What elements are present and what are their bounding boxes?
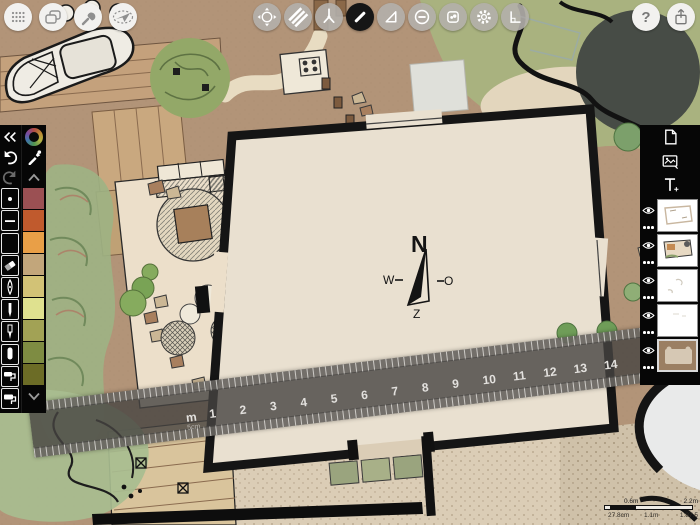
brush-tool-fineliner[interactable] — [1, 299, 19, 320]
dots-grid-icon — [9, 8, 27, 26]
brush-slots — [1, 187, 19, 410]
ruler-number: 8 — [421, 380, 429, 395]
layer-controls — [640, 199, 657, 232]
layer-visibility-toggle[interactable] — [642, 237, 655, 255]
tools-button[interactable] — [74, 3, 102, 31]
pen-tool-button[interactable] — [346, 3, 374, 31]
layer-options-button[interactable] — [643, 261, 654, 264]
minus-circle-icon — [410, 5, 434, 29]
brush-tool-eraser[interactable] — [1, 255, 19, 276]
share-button[interactable] — [667, 3, 695, 31]
layer-thumbnail[interactable] — [657, 234, 698, 267]
brush-tool-line[interactable] — [1, 210, 19, 231]
light-table — [410, 60, 468, 115]
eye-icon — [642, 241, 655, 250]
nib-icon — [317, 5, 341, 29]
compass-south-label: Z — [413, 307, 420, 321]
brush-tool-point[interactable] — [1, 188, 19, 209]
collapse-panel-button[interactable] — [0, 127, 20, 147]
undo-button[interactable] — [0, 147, 20, 167]
layer-thumbnail[interactable] — [657, 199, 698, 232]
ruler-number: 5 — [330, 391, 338, 406]
layer-5[interactable] — [640, 339, 700, 372]
precision-tool-button[interactable] — [501, 3, 529, 31]
color-swatch[interactable] — [23, 210, 44, 231]
settings-button[interactable] — [470, 3, 498, 31]
import-image-icon — [659, 151, 681, 171]
brush-tool-marker[interactable] — [1, 344, 19, 365]
layer-thumbnail[interactable] — [657, 339, 698, 372]
new-page-icon — [659, 127, 681, 147]
eraser-mode-button[interactable] — [408, 3, 436, 31]
scale-top-mid: 0.6m — [624, 498, 638, 505]
ruler-number: 9 — [451, 376, 459, 391]
ruler-number: 3 — [269, 399, 277, 414]
ruler-number: 11 — [512, 368, 526, 383]
layer-controls — [640, 234, 657, 267]
add-text-icon — [659, 175, 681, 195]
brush-tool-paint-roller[interactable] — [1, 366, 19, 387]
compass-west-label: W — [383, 273, 394, 287]
eyedropper-button[interactable] — [24, 147, 44, 167]
layer-list — [640, 197, 700, 372]
layer-controls — [640, 339, 657, 372]
color-swatch[interactable] — [23, 364, 44, 385]
compass-north-label: N — [411, 231, 428, 258]
layer-4[interactable] — [640, 304, 700, 337]
scale-ratio: 1:87.5 — [680, 512, 698, 519]
corner-angle-icon — [503, 5, 527, 29]
scale-bottom-left: 27.8cm — [608, 512, 629, 519]
share-icon — [671, 7, 691, 27]
eye-icon — [642, 346, 655, 355]
brush-tool-paint-roller-2[interactable] — [1, 388, 19, 409]
swatch-list — [23, 187, 44, 386]
undo-arrow-icon — [2, 149, 18, 165]
ruler-number: 1 — [208, 406, 216, 421]
window-toolbar — [4, 3, 137, 31]
color-wheel-icon[interactable] — [25, 128, 43, 146]
overlapping-windows-icon — [43, 7, 63, 27]
item-picker-button[interactable] — [439, 3, 467, 31]
brush-panel — [0, 125, 46, 413]
scale-top-right: 2.2m — [684, 498, 698, 505]
scale-bar-segments — [604, 505, 693, 510]
layer-visibility-toggle[interactable] — [642, 307, 655, 325]
ruler-number: 10 — [482, 372, 497, 388]
new-page-button[interactable] — [640, 125, 700, 149]
transform-tool-button[interactable] — [253, 3, 281, 31]
swatch-scroll-up[interactable] — [24, 167, 44, 187]
eye-icon — [642, 206, 655, 215]
brush-tool-empty[interactable] — [1, 233, 19, 254]
layer-options-button[interactable] — [643, 366, 654, 369]
swatch-scroll-down[interactable] — [24, 386, 44, 406]
layers-panel — [640, 125, 700, 385]
projector-button[interactable] — [109, 3, 137, 31]
compass-east-label: O — [444, 274, 453, 288]
left-door-stub — [195, 285, 210, 313]
eye-icon — [642, 311, 655, 320]
color-swatch[interactable] — [23, 298, 44, 319]
layer-visibility-toggle[interactable] — [642, 272, 655, 290]
redo-arrow-icon — [2, 169, 18, 185]
eyedropper-icon — [26, 149, 42, 165]
ruler-number: 4 — [300, 395, 308, 410]
ruler-number: 2 — [239, 402, 247, 417]
layer-thumbnail[interactable] — [657, 269, 698, 302]
triangle-icon — [379, 5, 403, 29]
scale-bottom-mid: 1.1m — [644, 512, 658, 519]
import-image-button[interactable] — [640, 149, 700, 173]
move-arrows-icon — [255, 5, 279, 29]
tree-canopy — [150, 38, 230, 118]
brush-tool-technical-pen[interactable] — [1, 321, 19, 342]
ruler-number: 13 — [573, 361, 588, 377]
ruler-number: 6 — [360, 388, 368, 403]
dots-grid-button[interactable] — [4, 3, 32, 31]
layer-2[interactable] — [640, 234, 700, 267]
rounded-square-icon — [441, 5, 465, 29]
scale-bar: 0.6m 2.2m 27.8cm 1.1m 1:87.5 — [604, 498, 698, 524]
ruler-number: 12 — [543, 364, 558, 380]
add-text-button[interactable] — [640, 173, 700, 197]
chevron-up-icon — [27, 173, 41, 182]
color-swatch[interactable] — [23, 342, 44, 363]
square-table — [174, 205, 212, 243]
help-button[interactable]: ? — [632, 3, 660, 31]
color-swatch[interactable] — [23, 276, 44, 297]
layer-thumbnail[interactable] — [657, 304, 698, 337]
layer-1[interactable] — [640, 199, 700, 232]
gear-icon — [472, 5, 496, 29]
layer-options-button[interactable] — [643, 226, 654, 229]
wrench-icon — [78, 7, 98, 27]
layer-3[interactable] — [640, 269, 700, 302]
color-column — [21, 125, 46, 413]
help-share-toolbar: ? — [632, 3, 695, 31]
gallery-button[interactable] — [39, 3, 67, 31]
layer-options-button[interactable] — [643, 296, 654, 299]
fill-tool-button[interactable] — [284, 3, 312, 31]
airbrush-tool-button[interactable] — [315, 3, 343, 31]
double-chevron-left-icon — [2, 130, 18, 144]
pen-stroke-icon — [348, 5, 372, 29]
main-toolbar — [253, 3, 529, 31]
compass-rose: N W O Z — [383, 223, 455, 328]
hatch-stripes-icon — [286, 5, 310, 29]
redo-button[interactable] — [0, 167, 20, 187]
projector-crossed-icon — [111, 7, 135, 27]
layer-visibility-toggle[interactable] — [642, 202, 655, 220]
color-swatch[interactable] — [23, 320, 44, 341]
layer-controls — [640, 304, 657, 337]
brush-column — [0, 125, 21, 413]
ruler-number: 7 — [391, 384, 399, 399]
layer-options-button[interactable] — [643, 331, 654, 334]
layer-controls — [640, 269, 657, 302]
layer-visibility-toggle[interactable] — [642, 342, 655, 360]
ruler-unit-label: m — [185, 410, 197, 425]
color-swatch[interactable] — [23, 232, 44, 253]
color-swatch[interactable] — [23, 188, 44, 209]
shape-guide-tool-button[interactable] — [377, 3, 405, 31]
brush-tool-fountain-pen[interactable] — [1, 277, 19, 298]
help-label: ? — [641, 9, 650, 26]
ruler-number: 14 — [603, 357, 618, 373]
color-swatch[interactable] — [23, 254, 44, 275]
eye-icon — [642, 276, 655, 285]
chevron-down-icon — [27, 392, 41, 401]
